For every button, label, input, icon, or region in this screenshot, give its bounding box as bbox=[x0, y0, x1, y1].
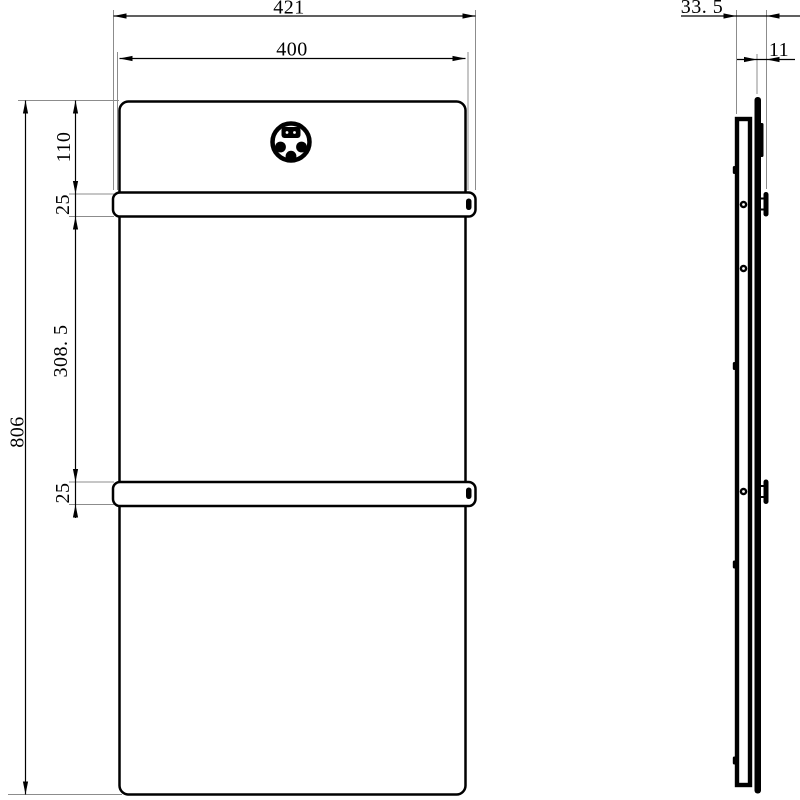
dim-overall-height: 806 bbox=[7, 416, 29, 448]
dim-panel-thickness: 11 bbox=[769, 39, 789, 61]
rail-bracket-pin-top bbox=[760, 192, 769, 217]
towel-rail-top bbox=[113, 193, 476, 217]
front-view: 421 400 806 110 25 308. 5 25 bbox=[7, 0, 476, 795]
technical-drawing-page: 421 400 806 110 25 308. 5 25 bbox=[0, 0, 800, 800]
dim-inner-width: 400 bbox=[276, 39, 308, 61]
dim-rail-bottom-height: 25 bbox=[52, 483, 74, 504]
panel-profile bbox=[737, 119, 750, 785]
dim-rail-spacing: 308. 5 bbox=[50, 325, 72, 378]
side-view: 33. 5 11 bbox=[681, 0, 800, 794]
dim-overall-depth: 33. 5 bbox=[681, 0, 724, 18]
rail-bracket-pin-bottom bbox=[760, 480, 769, 505]
dim-top-offset: 110 bbox=[53, 132, 75, 163]
drawing-canvas: 421 400 806 110 25 308. 5 25 bbox=[0, 0, 800, 800]
dim-rail-top-height: 25 bbox=[52, 194, 74, 215]
control-dial-icon bbox=[273, 124, 310, 162]
dim-outer-width: 421 bbox=[273, 0, 305, 19]
rail-top-strip bbox=[760, 123, 764, 157]
towel-rail-bottom bbox=[113, 482, 476, 506]
rail-end-slot-bottom bbox=[466, 488, 472, 500]
rail-end-slot-top bbox=[466, 199, 472, 211]
